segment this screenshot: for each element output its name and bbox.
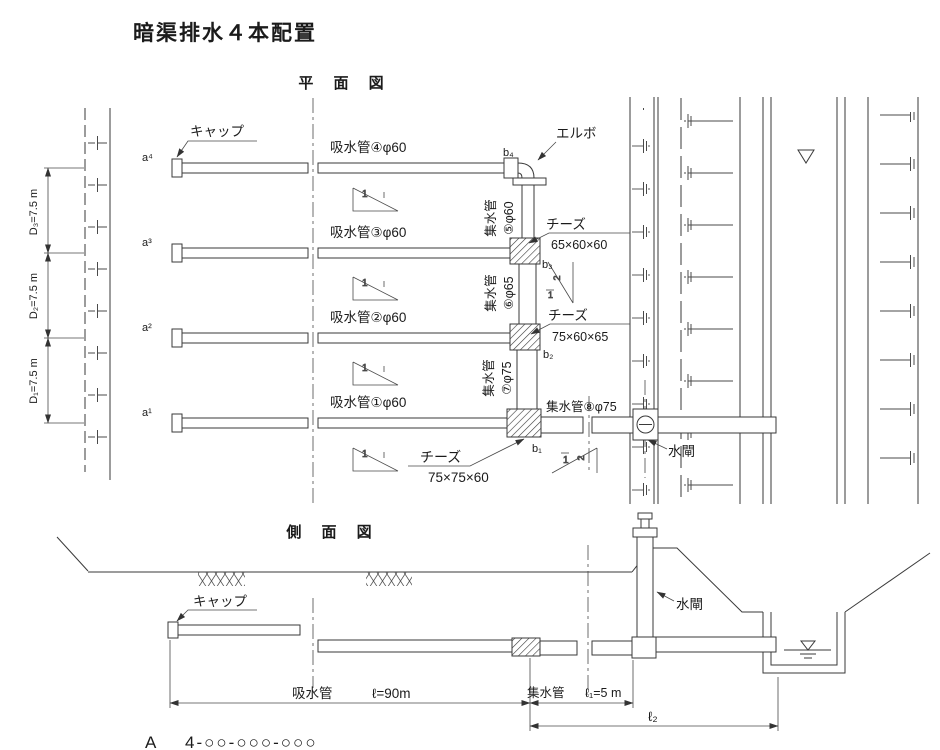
water-level-icon-side [801,641,815,650]
drawing-number-value: 4-○○-○○○-○○○ [185,733,318,750]
tee1-label: チーズ [546,217,586,232]
left-bank-hatch [88,108,107,468]
cap-a2 [172,329,182,347]
tee1-size: 65×60×60 [551,238,607,252]
suction-pipe-4-seg2 [318,163,504,173]
bank-hatch-c [877,112,917,498]
b4-label: b₄ [503,147,514,159]
sluice-handle-stem [641,519,649,528]
cap-label-plan: キャップ [190,124,244,139]
sluice-handle-bar [638,513,652,519]
collector8-label: 集水管⑧φ75 [546,399,617,414]
collector6-name: 集水管 [483,274,498,312]
svg-text:1: 1 [563,455,569,466]
cap-a4 [172,159,182,177]
collector-pipe-7 [517,350,537,409]
suction3-label: 吸水管③φ60 [330,225,406,240]
b1-label: b₁ [532,443,542,455]
svg-text:2: 2 [552,275,562,280]
svg-text:1: 1 [362,278,368,289]
suction-pipe-3-seg2 [318,248,510,258]
collector-dim-length: ℓ₁=5 m [585,686,621,700]
tee-fitting-1 [510,238,540,264]
tee-fitting-3 [507,409,541,437]
collector5-size: ⑤φ60 [502,201,516,234]
suction-pipe-side-seg1 [178,625,300,635]
side-labels: キャップ 水閘 [177,592,703,621]
drawing-canvas: 暗渠排水４本配置 平 面 図 側 面 図 [0,0,940,750]
sluice-tee-side [632,637,656,658]
sluice-label-side: 水閘 [676,597,703,612]
drawing-number: A 4-○○-○○○-○○○ [145,733,318,750]
collector7-size: ⑦φ75 [500,361,514,394]
bank-hatch-b [684,112,733,498]
cap-a1 [172,414,182,432]
elbow-label: エルボ [556,126,597,141]
water-level-icon [798,150,814,163]
svg-text:1: 1 [362,449,368,460]
sluice-cap-side [633,528,657,537]
suction4-label: 吸水管④φ60 [330,140,406,155]
collector-pipe-5 [522,185,534,238]
elbow-leader [538,142,556,160]
collector6-size: ⑥φ65 [502,276,516,309]
cap-leader-side [177,610,257,621]
cap-leader-plan [177,141,257,157]
cap-a3 [172,244,182,262]
tee2-label: チーズ [548,308,588,323]
svg-text:1: 1 [548,290,553,300]
ground-profile [57,537,930,612]
elbow-fitting [518,163,534,178]
sheet-title: 暗渠排水４本配置 [133,21,317,45]
dim-d1: D₁=7.5 m [28,358,40,404]
tee3-label: チーズ [420,449,461,465]
tee2-size: 75×60×65 [552,330,608,344]
cap-side [168,622,178,638]
suction-pipe-side-seg2 [318,640,512,652]
side-pipes [168,513,776,658]
a2-label: a² [142,322,152,334]
a4-label: a⁴ [142,152,153,164]
ground-hatch-1 [198,572,245,586]
suction-pipes [172,159,510,432]
side-dimensions: 吸水管 ℓ=90m 集水管 ℓ₁=5 m ℓ₂ [170,640,778,731]
suction-pipe-1-seg1 [182,418,308,428]
suction2-label: 吸水管②φ60 [330,310,406,325]
outfall-pipe-side [656,637,776,652]
a3-label: a³ [142,237,152,249]
svg-text:2: 2 [576,455,586,460]
spacing-dimensions: D₃=7.5 m D₂=7.5 m D₁=7.5 m [28,168,84,423]
suction-dim-length: ℓ=90m [372,686,411,701]
suction1-label: 吸水管①φ60 [330,395,406,410]
canal-banks [630,97,918,504]
collector-pipe-8a [541,417,583,433]
l2-dim-label: ℓ₂ [648,709,658,724]
side-view-title: 側 面 図 [285,523,379,541]
sluice-label-plan: 水閘 [668,444,695,459]
cap-label-side: キャップ [193,594,247,609]
tee-fitting-2 [510,324,540,350]
sluice-stem-side [637,537,653,638]
svg-text:1: 1 [362,189,368,200]
side-view: キャップ 水閘 吸水管 ℓ=90m 集水管 ℓ₁=5 m ℓ₂ [57,513,930,731]
suction-pipe-2-seg1 [182,333,308,343]
b2-label: b₂ [543,349,553,361]
suction-pipe-4-seg1 [182,163,308,173]
collector-dim-label: 集水管 [527,685,565,700]
suction-pipe-2-seg2 [318,333,510,343]
plan-view-title: 平 面 図 [298,75,391,92]
plan-view: D₃=7.5 m D₂=7.5 m D₁=7.5 m [28,97,918,505]
coupling-b4 [504,158,518,178]
b3-label: b₃ [542,259,553,271]
drawing-sheet: 暗渠排水４本配置 平 面 図 側 面 図 [0,0,940,750]
tee-fitting-side [512,638,540,656]
a1-label: a¹ [142,407,152,419]
dim-d2: D₂=7.5 m [28,273,40,319]
collector-pipe-8b [592,417,633,433]
elbow-flange [513,178,546,185]
ground-hatch-2 [366,572,412,586]
sluice-leader-side [657,592,674,601]
collector-pipe-6 [519,264,536,324]
collector7-name: 集水管 [481,359,496,397]
suction-pipe-1-seg2 [318,418,507,428]
suction-pipe-3-seg1 [182,248,308,258]
svg-text:1: 1 [362,363,368,374]
suction-dim-label: 吸水管 [292,686,333,701]
left-bank-band [85,108,110,480]
dim-d3: D₃=7.5 m [28,189,40,235]
collector-pipe-8c [658,417,776,433]
collector-side-b [592,641,632,655]
tee3-size: 75×75×60 [428,470,489,485]
collector5-name: 集水管 [483,199,498,237]
drawing-number-prefix: A [145,733,158,750]
collector-side-a [540,641,577,655]
